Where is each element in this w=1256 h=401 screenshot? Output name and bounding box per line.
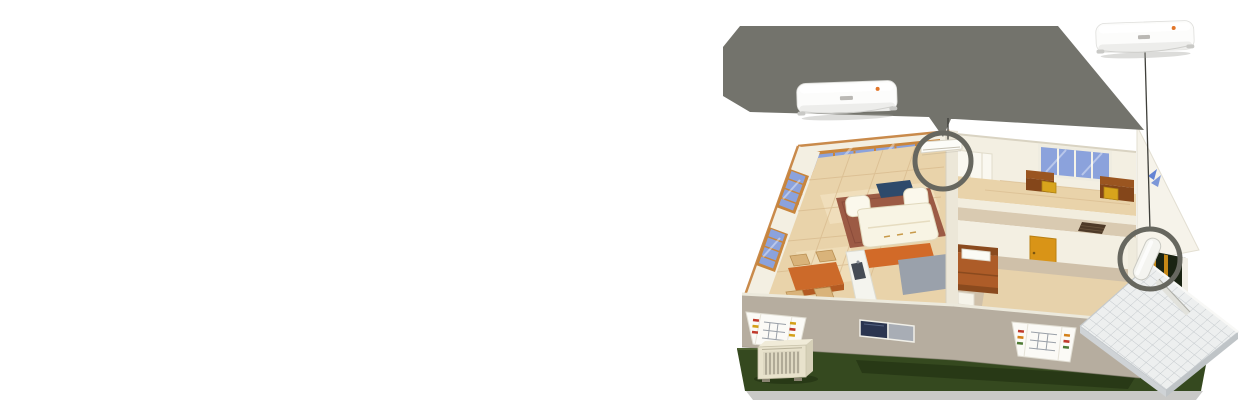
dining-chair xyxy=(816,250,836,262)
living-room xyxy=(744,131,952,310)
outdoor-unit-side xyxy=(806,339,813,377)
nightstand xyxy=(958,292,974,306)
base-strip xyxy=(746,391,1203,400)
outdoor-unit-foot xyxy=(794,378,802,381)
unit-end-cap xyxy=(1186,44,1194,48)
office-chair xyxy=(1042,181,1056,193)
basement-window-navy xyxy=(860,320,888,339)
kitchen-counter-gray xyxy=(898,254,952,295)
brand-logo xyxy=(840,96,853,100)
ac-installation-illustration xyxy=(0,0,1256,401)
unit-end-cap xyxy=(1096,49,1104,53)
outdoor-unit-foot xyxy=(762,379,770,382)
enlarged-indoor-unit-right xyxy=(1096,20,1195,59)
bay-window-right xyxy=(1012,322,1076,362)
unit-end-cap xyxy=(889,106,897,110)
page xyxy=(0,0,1256,401)
projection-beam xyxy=(723,26,1144,137)
door-knob xyxy=(1033,252,1036,255)
brand-logo xyxy=(1138,35,1150,39)
basement-window-gray xyxy=(888,323,914,342)
outdoor-condenser-unit xyxy=(754,339,818,384)
office-chair xyxy=(1104,187,1118,200)
enlarged-indoor-unit-left xyxy=(796,80,897,121)
bed xyxy=(956,244,998,294)
dining-chair xyxy=(790,254,810,266)
unit-end-cap xyxy=(797,111,805,115)
partition-wall xyxy=(946,130,958,312)
kitchen-faucet xyxy=(857,261,860,264)
